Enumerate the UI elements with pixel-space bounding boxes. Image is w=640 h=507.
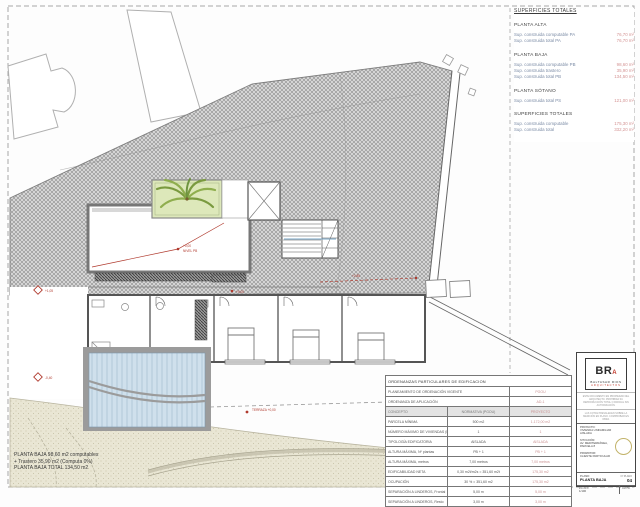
surfaces-section-planta-alta: PLANTA ALTA Sup. construida computable P… xyxy=(514,23,634,44)
table-cell: AD-1 xyxy=(510,397,572,407)
architect-logo: BRA BALTASAR RIOS ARQUITECTOS xyxy=(585,358,627,390)
skylight xyxy=(222,180,280,220)
drawing-sheet: +0,00 NIVEL PB +0,00 TERRAZA +0,00 +2,85… xyxy=(0,0,640,494)
table-cell: 1.172,00 m2 xyxy=(510,417,572,427)
table-row: OCUPACIÓN30 % = 351,60 m2175,30 m2 xyxy=(386,477,572,487)
logo-initials: BR xyxy=(595,365,612,377)
plano-value: PLANTA BAJA xyxy=(580,478,621,482)
table-cell: 175,30 m2 xyxy=(510,477,572,487)
cota-label: +0,00 xyxy=(183,244,191,248)
table-header: CONCEPTO xyxy=(386,407,448,417)
table-cell: 5,00 m xyxy=(448,487,510,497)
scale-date-row: ESCALA1/100 FECHA xyxy=(577,485,635,494)
field-value: VIVIENDA UNIFAMILIAR AISLADA xyxy=(580,429,618,436)
fine-print: LAS COTAS PREVALECEN SOBRE LA MEDICIÓN E… xyxy=(577,409,635,423)
table-row: PARCELA MÍNIMA500 m21.172,00 m2 xyxy=(386,417,572,427)
surface-label: Sup. construida total xyxy=(514,127,554,133)
bed-icon xyxy=(228,328,384,361)
surfaces-title: SUPERFICIES TOTALES xyxy=(514,8,634,14)
note-line: PLANTA BAJA TOTAL 134,50 m2 xyxy=(14,465,98,472)
boundary-fence xyxy=(430,297,570,370)
table-title: ORDENANZAS PARTICULARES DE EDIFICACION xyxy=(386,376,572,387)
title-block-fields: PROYECTO:VIVIENDA UNIFAMILIAR AISLADA SI… xyxy=(577,423,635,472)
table-cell: 175,30 m2 xyxy=(510,467,572,477)
table-cell: 500 m2 xyxy=(448,417,510,427)
table-cell: 1 xyxy=(448,427,510,437)
table-cell: SEPARACIÓN A LINDEROS, Resto xyxy=(386,497,448,507)
parking-space xyxy=(426,279,471,297)
studio-subtitle: ARQUITECTOS xyxy=(586,384,626,387)
table-row: NÚMERO MÁXIMO DE VIVIENDAS (Nº viv/parce… xyxy=(386,427,572,437)
surface-label: Sup. construida total PB xyxy=(514,74,561,80)
section-heading: PLANTA BAJA xyxy=(514,53,634,58)
plano-number-value: 04 xyxy=(621,478,632,483)
table-cell: PGOU xyxy=(510,387,572,397)
table-row: SEPARACIÓN A LINDEROS, Resto3,00 m3,00 m xyxy=(386,497,572,507)
surface-value: 121,00 m² xyxy=(614,98,634,104)
table-row: ALTURA MÁXIMA, metros7,00 metros7,00 met… xyxy=(386,457,572,467)
neighbor-building-top xyxy=(127,10,201,122)
escala-value: 1/100 xyxy=(579,490,617,493)
table-cell: PARCELA MÍNIMA xyxy=(386,417,448,427)
section-heading: SUPERFICIES TOTALES xyxy=(514,112,634,117)
svg-text:-0,40: -0,40 xyxy=(45,376,52,380)
table-cell: PB + 1 xyxy=(510,447,572,457)
wardrobe xyxy=(195,300,207,340)
table-cell: 3,00 m xyxy=(510,497,572,507)
logo-a: A xyxy=(612,370,616,376)
surfaces-panel: SUPERFICIES TOTALES PLANTA ALTA Sup. con… xyxy=(514,8,634,142)
table-row: ORDENANZA DE APLICACIÓNAD-1 xyxy=(386,397,572,407)
plan-note: PLANTA BAJA 98,60 m2 computables + Trast… xyxy=(14,452,98,472)
table-row: EDIFICABILIDAD NETA0,30 m2t/m2s = 351,60… xyxy=(386,467,572,477)
table-cell: 30 % = 351,60 m2 xyxy=(448,477,510,487)
table-cell: 0,30 m2t/m2s = 351,60 m2t xyxy=(448,467,510,477)
table-cell: 5,00 m xyxy=(510,487,572,497)
table-cell: EDIFICABILIDAD NETA xyxy=(386,467,448,477)
official-seal-icon xyxy=(615,438,632,455)
field-value: AV. MEDITERRÁNEA, PARCELA 8 xyxy=(580,442,618,449)
table-row: PLANEAMIENTO DE ORDENACIÓN VIGENTEPGOU xyxy=(386,387,572,397)
table-cell: AISLADA xyxy=(510,437,572,447)
table-cell: 3,00 m xyxy=(448,497,510,507)
cota-label: NIVEL PB xyxy=(183,249,197,253)
plano-row: PLANO: PLANTA BAJA Nº PLANO 04 xyxy=(577,472,635,485)
table-cell: ORDENANZA DE APLICACIÓN xyxy=(386,397,510,407)
table-header: PROYECTO xyxy=(510,407,572,417)
section-heading: PLANTA ALTA xyxy=(514,23,634,28)
table-cell: 7,00 metros xyxy=(510,457,572,467)
table-cell: AISLADA xyxy=(448,437,510,447)
surface-label: Sup. construida total PS xyxy=(514,98,561,104)
table-header-row: CONCEPTONORMATIVA (PGOU)PROYECTO xyxy=(386,407,572,417)
surface-value: 134,50 m² xyxy=(614,74,634,80)
table-cell: ALTURA MÁXIMA, Nº plantas xyxy=(386,447,448,457)
table-cell: PB + 1 xyxy=(448,447,510,457)
table-row: ALTURA MÁXIMA, Nº plantasPB + 1PB + 1 xyxy=(386,447,572,457)
surfaces-section-planta-baja: PLANTA BAJA Sup. construida computable P… xyxy=(514,53,634,80)
table-cell: PLANEAMIENTO DE ORDENACIÓN VIGENTE xyxy=(386,387,510,397)
table-cell: ALTURA MÁXIMA, metros xyxy=(386,457,448,467)
cota-label: +2,85 xyxy=(352,274,360,278)
surface-label: Sup. construida total PA xyxy=(514,38,561,44)
table-cell: 1 xyxy=(510,427,572,437)
cota-label: +0,00 xyxy=(236,290,244,294)
table-cell: TIPOLOGÍA EDIFICATORIA xyxy=(386,437,448,447)
table-cell: NÚMERO MÁXIMO DE VIVIENDAS (Nº viv/parce… xyxy=(386,427,448,437)
table-cell: SEPARACIÓN A LINDEROS, Frontal xyxy=(386,487,448,497)
note-line: PLANTA BAJA 98,60 m2 computables xyxy=(14,452,98,459)
table-row: SEPARACIÓN A LINDEROS, Frontal5,00 m5,00… xyxy=(386,487,572,497)
fecha-label: FECHA xyxy=(622,487,640,490)
table-cell: OCUPACIÓN xyxy=(386,477,448,487)
staircase xyxy=(282,220,338,258)
field-value: CLIENTE PARTICULAR xyxy=(580,455,618,458)
table-cell: 7,00 metros xyxy=(448,457,510,467)
pool xyxy=(83,347,211,431)
surfaces-section-totales: SUPERFICIES TOTALES Sup. construida comp… xyxy=(514,112,634,133)
table-row: TIPOLOGÍA EDIFICATORIAAISLADAAISLADA xyxy=(386,437,572,447)
surface-value: 76,70 m² xyxy=(617,38,634,44)
fine-print: ESTE DOCUMENTO ES PROPIEDAD DEL ARQUITEC… xyxy=(577,392,635,409)
west-terrace xyxy=(10,287,88,399)
section-heading: PLANTA SÓTANO xyxy=(514,89,634,94)
table-row: ORDENANZAS PARTICULARES DE EDIFICACION xyxy=(386,376,572,387)
cota-label: TERRAZA +0,00 xyxy=(252,408,276,412)
surfaces-section-planta-sotano: PLANTA SÓTANO Sup. construida total PS12… xyxy=(514,89,634,104)
neighbor-building-left xyxy=(8,54,75,139)
ordenanzas-table: ORDENANZAS PARTICULARES DE EDIFICACION P… xyxy=(385,375,572,507)
note-line: + Trastero 35,90 m2 (Computa 0%) xyxy=(14,459,98,466)
surface-value: 332,20 m² xyxy=(614,127,634,133)
table-header: NORMATIVA (PGOU) xyxy=(448,407,510,417)
svg-text:+1,05: +1,05 xyxy=(45,289,53,293)
title-block: BRA BALTASAR RIOS ARQUITECTOS ESTE DOCUM… xyxy=(576,352,636,487)
